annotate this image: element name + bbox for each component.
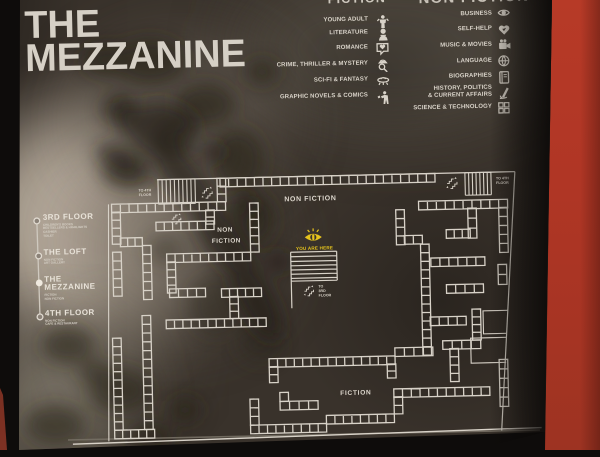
svg-text:FLOOR: FLOOR [319, 293, 332, 297]
svg-text:FLOOR: FLOOR [139, 193, 152, 197]
svg-text:NON FICTION: NON FICTION [284, 195, 336, 203]
svg-text:FLOOR: FLOOR [496, 181, 509, 185]
svg-text:FICTION: FICTION [340, 389, 371, 397]
svg-text:NON: NON [217, 227, 233, 234]
svg-text:TO: TO [318, 284, 323, 288]
svg-text:YOU ARE HERE: YOU ARE HERE [296, 245, 333, 251]
svg-text:FICTION: FICTION [212, 237, 241, 245]
